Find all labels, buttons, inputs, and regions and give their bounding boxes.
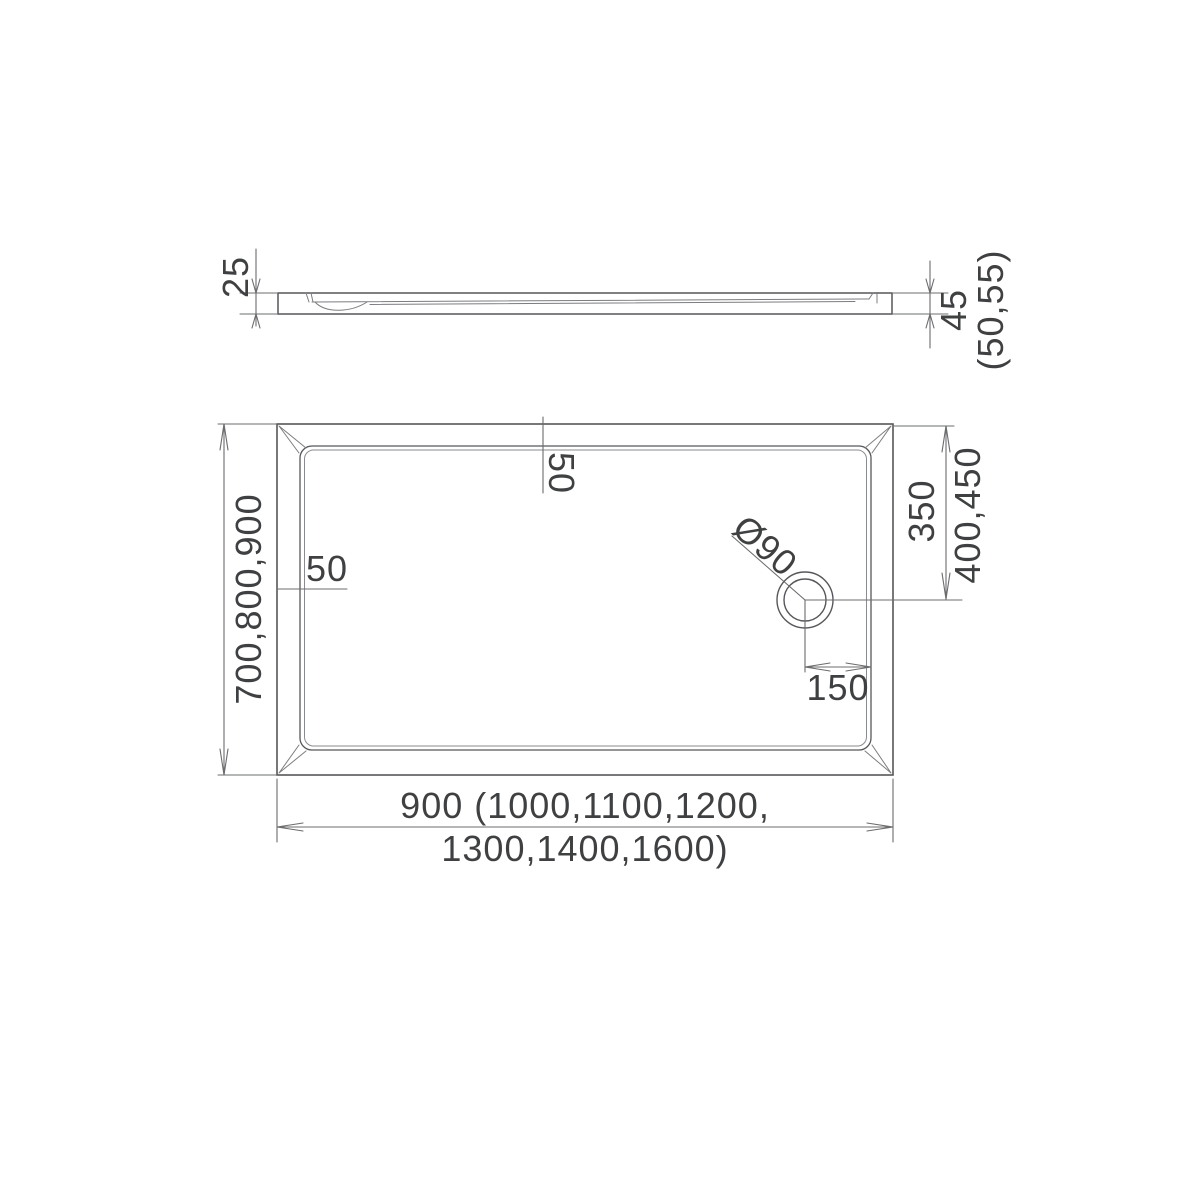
dim-label-rim-width-left: 50 <box>306 551 348 587</box>
side-view-interior-lines <box>306 293 877 310</box>
dim-label-plan-length-line1: 900 (1000,1100,1200, <box>400 788 770 824</box>
dim-label-drain-offset-top-variants: 400,450 <box>950 446 986 583</box>
dim-label-drain-offset-right: 150 <box>806 670 869 706</box>
dim-label-drain-offset-top: 350 <box>904 479 940 542</box>
dim-label-plan-width: 700,800,900 <box>231 493 267 704</box>
plan-outer-rect <box>277 424 893 775</box>
dim-label-plan-length-line2: 1300,1400,1600) <box>441 831 728 867</box>
plan-inner-floor-edge <box>305 450 867 746</box>
dim-label-side-total-height-variants: (50,55) <box>973 249 1009 370</box>
drawing-sheet: 25 45 (50,55) 700,800,900 50 50 Ø90 350 … <box>0 0 1200 1200</box>
dim-label-rim-width-top: 50 <box>543 452 579 494</box>
drawing-linework <box>0 0 1200 1200</box>
plan-inner-rim <box>300 446 871 750</box>
dim-label-side-rim-height: 25 <box>218 256 254 298</box>
plan-corner-chamfer-lines <box>279 426 891 773</box>
dim-label-side-total-height: 45 <box>936 289 972 331</box>
